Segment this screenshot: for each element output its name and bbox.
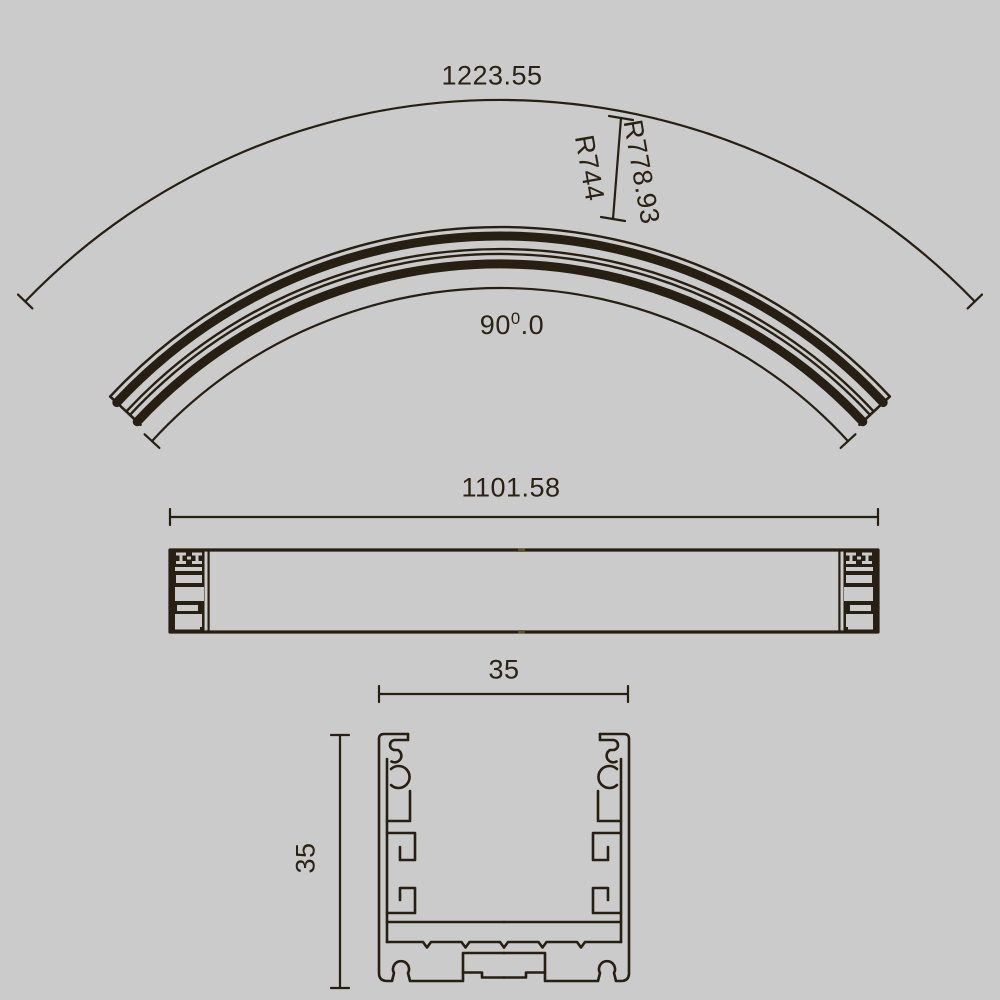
cross-section-view [331,686,629,988]
curved-profile-view [18,100,982,448]
section-right-half [504,734,629,981]
angle-superscript: 0 [511,309,521,328]
technical-drawing: 1223.55 R778.93 R744 900.0 1101.58 35 35 [0,0,1000,1000]
section-height-label: 35 [291,842,322,873]
side-view [170,509,878,633]
mid-joint-seam [518,549,525,634]
angle-decimal: .0 [521,310,545,340]
outer-arc-dimension [18,100,982,308]
angle-label: 900.0 [480,309,544,341]
end-cap-left [170,550,209,632]
height-dimension [331,735,349,988]
length-dimension [170,509,878,525]
end-cap-right [839,550,878,632]
side-length-label: 1101.58 [461,473,560,504]
profile-body-outline [170,550,878,632]
width-dimension [379,686,628,702]
section-left-half [379,734,504,981]
section-width-label: 35 [488,655,519,686]
outer-arc-length-label: 1223.55 [441,61,542,92]
angle-value: 90 [480,310,511,340]
